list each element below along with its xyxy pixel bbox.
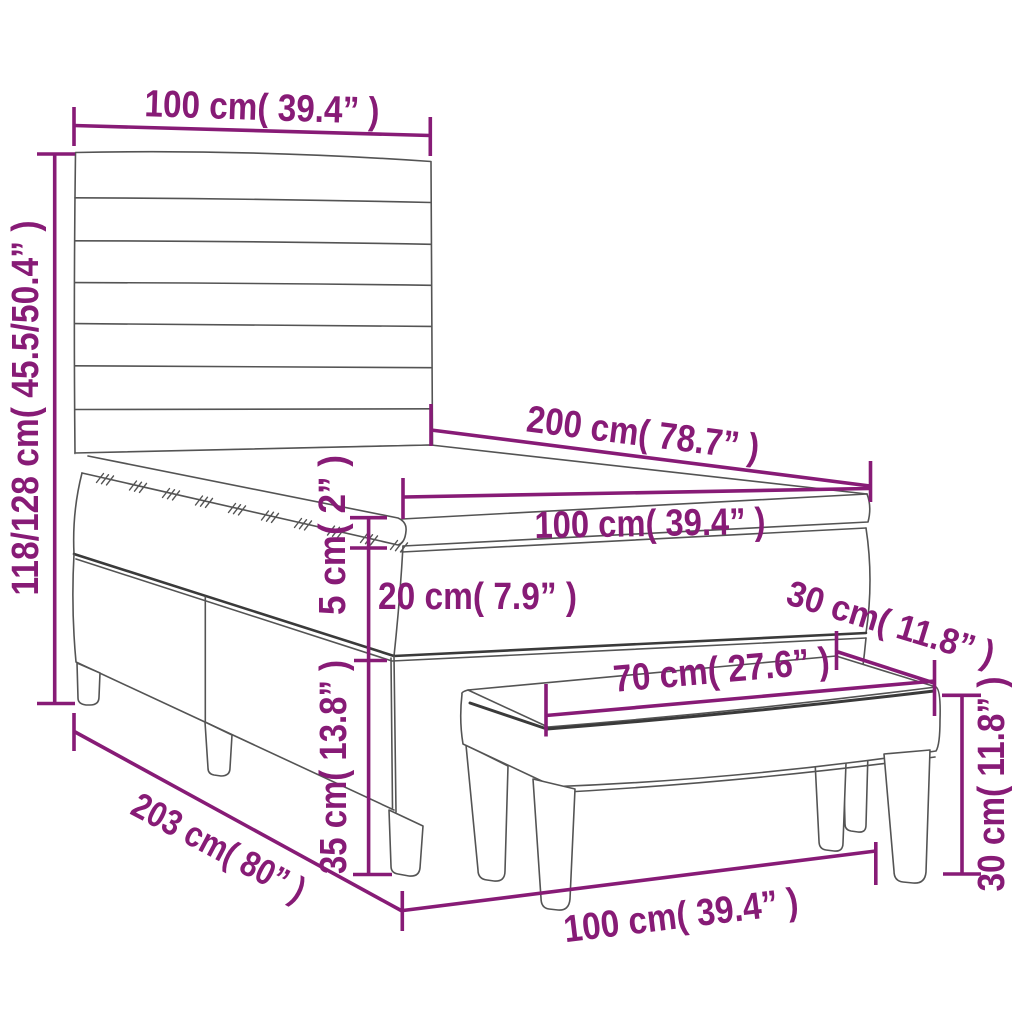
svg-text:100 cm( 39.4” ): 100 cm( 39.4” ) xyxy=(534,501,766,547)
svg-text:35 cm( 13.8” ): 35 cm( 13.8” ) xyxy=(313,660,355,874)
svg-text:30 cm( 11.8” ): 30 cm( 11.8” ) xyxy=(971,677,1013,892)
svg-text:20 cm( 7.9” ): 20 cm( 7.9” ) xyxy=(378,576,577,618)
svg-text:100 cm( 39.4” ): 100 cm( 39.4” ) xyxy=(144,83,380,133)
svg-text:5 cm( 2” ): 5 cm( 2” ) xyxy=(312,455,354,615)
svg-text:118/128 cm( 45.5/50.4” ): 118/128 cm( 45.5/50.4” ) xyxy=(5,221,47,596)
